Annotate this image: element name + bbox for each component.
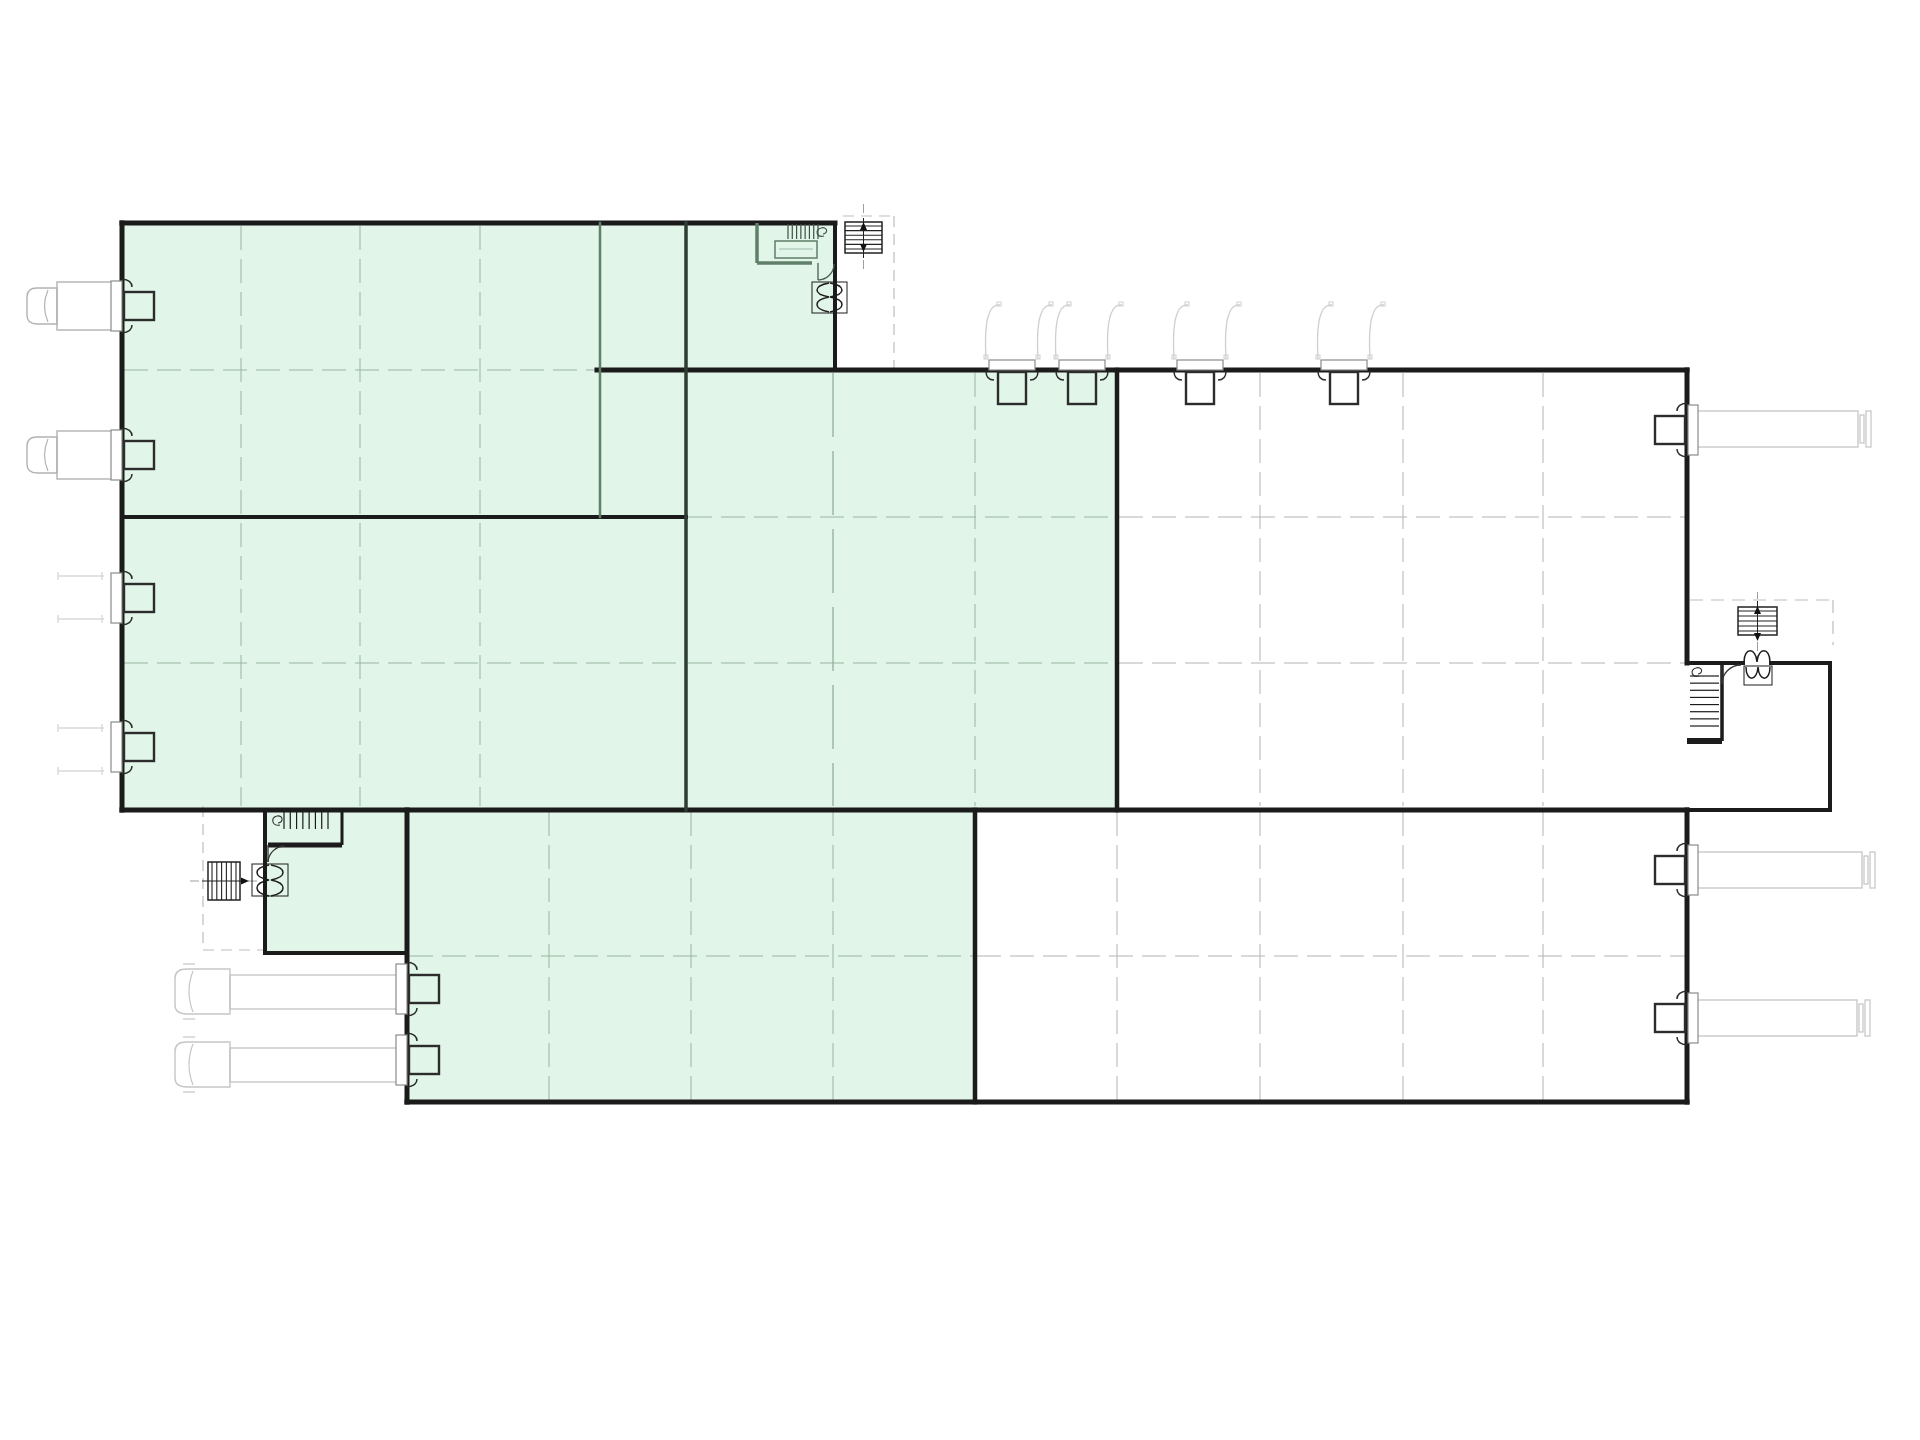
unit-c-white: [1117, 370, 1687, 810]
dock-plate: [1321, 360, 1367, 370]
truck-body: [57, 282, 113, 330]
dock-plate: [1688, 993, 1698, 1043]
unit-b-green: [686, 370, 1117, 810]
dock-door-leaf: [1655, 856, 1685, 884]
dock-door-leaf: [1186, 372, 1214, 404]
semi-cab: [175, 1042, 230, 1087]
shelter-arc: [1036, 302, 1053, 359]
dock-plate: [396, 1035, 407, 1085]
dock-door-leaf: [124, 733, 154, 761]
shelter-hose: [985, 305, 1000, 359]
warehouse-floor-plan: [0, 0, 1920, 1440]
dock-door-leaf: [124, 584, 154, 612]
shelter-hose: [1107, 305, 1122, 359]
dock-plate: [111, 722, 122, 772]
shelter-hose: [1037, 305, 1052, 359]
dock-plate: [1059, 360, 1105, 370]
semi-windshield: [189, 971, 193, 1012]
semi-cab: [175, 969, 230, 1014]
dock-door-leaf: [1655, 416, 1685, 444]
layer-dock-shelter-arcs: [984, 302, 1385, 359]
shelter-arc: [1106, 302, 1123, 359]
unit-a-top-band: [122, 223, 835, 370]
shelter-hose: [1225, 305, 1240, 359]
small-green-room: [265, 810, 407, 953]
shelter-arc: [984, 302, 1001, 359]
right-cab-stub: [1860, 415, 1864, 443]
dock-plate: [111, 430, 122, 480]
stair-arrow-right: [241, 878, 249, 885]
floor-plan-page: [0, 0, 1920, 1440]
shelter-arc: [1224, 302, 1241, 359]
truck-body: [57, 431, 113, 479]
semi-windshield: [189, 1044, 193, 1085]
shelter-hose: [1317, 305, 1332, 359]
truck-cab: [27, 437, 57, 473]
shelter-arc: [1172, 302, 1189, 359]
right-cab-stub: [1866, 411, 1871, 447]
right-trailer: [1695, 411, 1858, 447]
dock-plate: [111, 573, 122, 623]
shelter-hose: [1369, 305, 1384, 359]
shelter-arc: [1054, 302, 1071, 359]
right-trailer: [1695, 1000, 1857, 1036]
truck-windshield: [45, 439, 49, 471]
dock-plate: [989, 360, 1035, 370]
dock-door-leaf: [124, 441, 154, 469]
dock-plate: [1177, 360, 1223, 370]
right-cab-stub: [1864, 856, 1868, 884]
right-cab-stub: [1859, 1004, 1863, 1032]
dock-door-leaf: [1330, 372, 1358, 404]
dock-plate: [111, 281, 122, 331]
right-cab-stub: [1870, 852, 1875, 888]
shelter-arc: [1316, 302, 1333, 359]
right-cab-stub: [1865, 1000, 1870, 1036]
dock-door-leaf: [998, 372, 1026, 404]
semi-trailer: [230, 1048, 402, 1082]
truck-windshield: [45, 290, 49, 322]
right-trailer: [1695, 852, 1862, 888]
dock-door-leaf: [1655, 1004, 1685, 1032]
unit-a-lower: [122, 370, 686, 810]
dock-door-leaf: [124, 292, 154, 320]
truck-cab: [27, 288, 57, 324]
dock-door-leaf: [409, 1046, 439, 1074]
dock-plate: [1688, 405, 1698, 455]
shelter-hose: [1055, 305, 1070, 359]
dock-plate: [396, 964, 407, 1014]
shelter-hose: [1173, 305, 1188, 359]
dock-door-leaf: [1068, 372, 1096, 404]
stair-arrow-down: [1754, 633, 1761, 641]
dock-door-leaf: [409, 975, 439, 1003]
semi-trailer: [230, 975, 402, 1009]
shelter-arc: [1368, 302, 1385, 359]
dock-plate: [1688, 845, 1698, 895]
